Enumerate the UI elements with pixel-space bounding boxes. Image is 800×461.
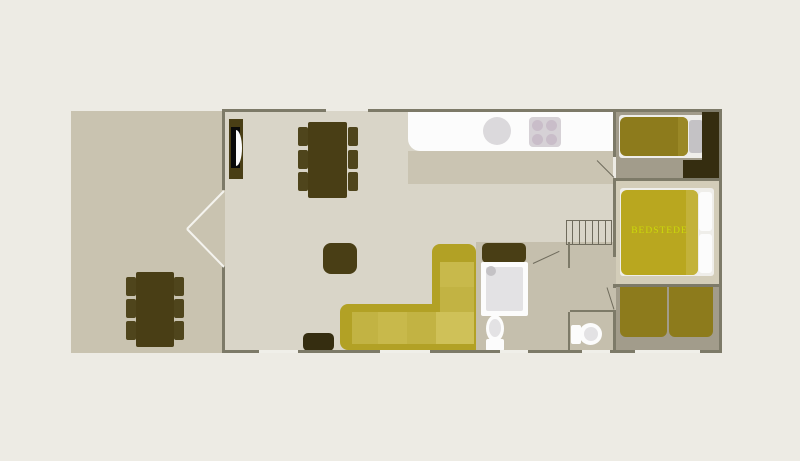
kitchen-sink <box>483 117 511 145</box>
dining-chair <box>298 127 308 146</box>
stair-tread <box>585 221 586 244</box>
toilet-seat <box>489 319 501 337</box>
sofa-seat-cushion <box>352 312 378 344</box>
stair-tread <box>598 221 599 244</box>
wall-segment <box>368 109 722 112</box>
window <box>500 350 528 353</box>
stair-tread <box>572 221 573 244</box>
window <box>582 350 610 353</box>
terrace-chair <box>126 277 136 296</box>
wall-segment <box>613 178 722 181</box>
wall-segment <box>222 109 225 190</box>
stair-tread <box>579 221 580 244</box>
stair-tread <box>592 221 593 244</box>
wall-segment <box>568 312 570 350</box>
duvet-fold <box>678 117 688 156</box>
terrace-chair <box>174 299 184 318</box>
wall-segment <box>222 350 259 353</box>
dining-chair <box>348 127 358 146</box>
kitchen-counter <box>408 111 614 151</box>
staircase <box>566 220 612 245</box>
sofa-seat-cushion <box>440 262 474 287</box>
wall-segment <box>430 350 500 353</box>
sofa-seat-cushion <box>440 287 474 312</box>
wall-segment <box>222 266 225 353</box>
dining-chair <box>348 172 358 191</box>
burner-icon <box>532 134 543 145</box>
terrace-chair <box>126 299 136 318</box>
terrace-chair <box>174 277 184 296</box>
burner-icon <box>532 120 543 131</box>
double-bed-duvet <box>620 287 667 337</box>
wall-segment <box>528 350 582 353</box>
box-bed-label: BEDSTEDE <box>620 226 699 236</box>
terrace-chair <box>174 321 184 340</box>
wall-segment <box>222 109 326 112</box>
kitchen-floor-strip <box>408 151 613 184</box>
double-bed-duvet <box>669 287 713 337</box>
window <box>380 350 430 353</box>
window <box>259 350 298 353</box>
sofa-seat-cushion <box>407 312 436 344</box>
wall-segment <box>570 310 613 312</box>
terrace-chair <box>126 321 136 340</box>
tv-bench <box>303 333 334 351</box>
wall-segment <box>719 109 722 353</box>
floor-plan-canvas: BEDSTEDE <box>0 0 800 461</box>
burner-icon <box>546 134 557 145</box>
pillow <box>699 192 712 231</box>
armchair <box>323 243 357 274</box>
wardrobe <box>683 160 722 178</box>
dining-table <box>308 122 347 198</box>
bathroom-cabinet <box>482 243 526 263</box>
wall-segment <box>568 242 570 268</box>
wall-segment <box>298 350 380 353</box>
burner-icon <box>546 120 557 131</box>
wall-segment <box>613 310 616 352</box>
toilet-seat <box>584 327 598 341</box>
sofa-seat-cushion <box>378 312 407 344</box>
terrace-dining-table <box>136 272 174 347</box>
window <box>635 350 700 353</box>
dining-chair <box>298 150 308 169</box>
pillow <box>699 234 712 273</box>
pillow <box>689 120 703 153</box>
stair-tread <box>611 221 612 244</box>
wall-segment <box>613 109 616 157</box>
wall-segment <box>613 284 722 287</box>
wall-segment <box>613 178 616 257</box>
stair-tread <box>566 221 567 244</box>
dining-chair <box>348 150 358 169</box>
shower-drain-icon <box>486 266 496 276</box>
dining-chair <box>298 172 308 191</box>
sofa-corner-cushion <box>436 312 474 344</box>
stair-tread <box>605 221 606 244</box>
